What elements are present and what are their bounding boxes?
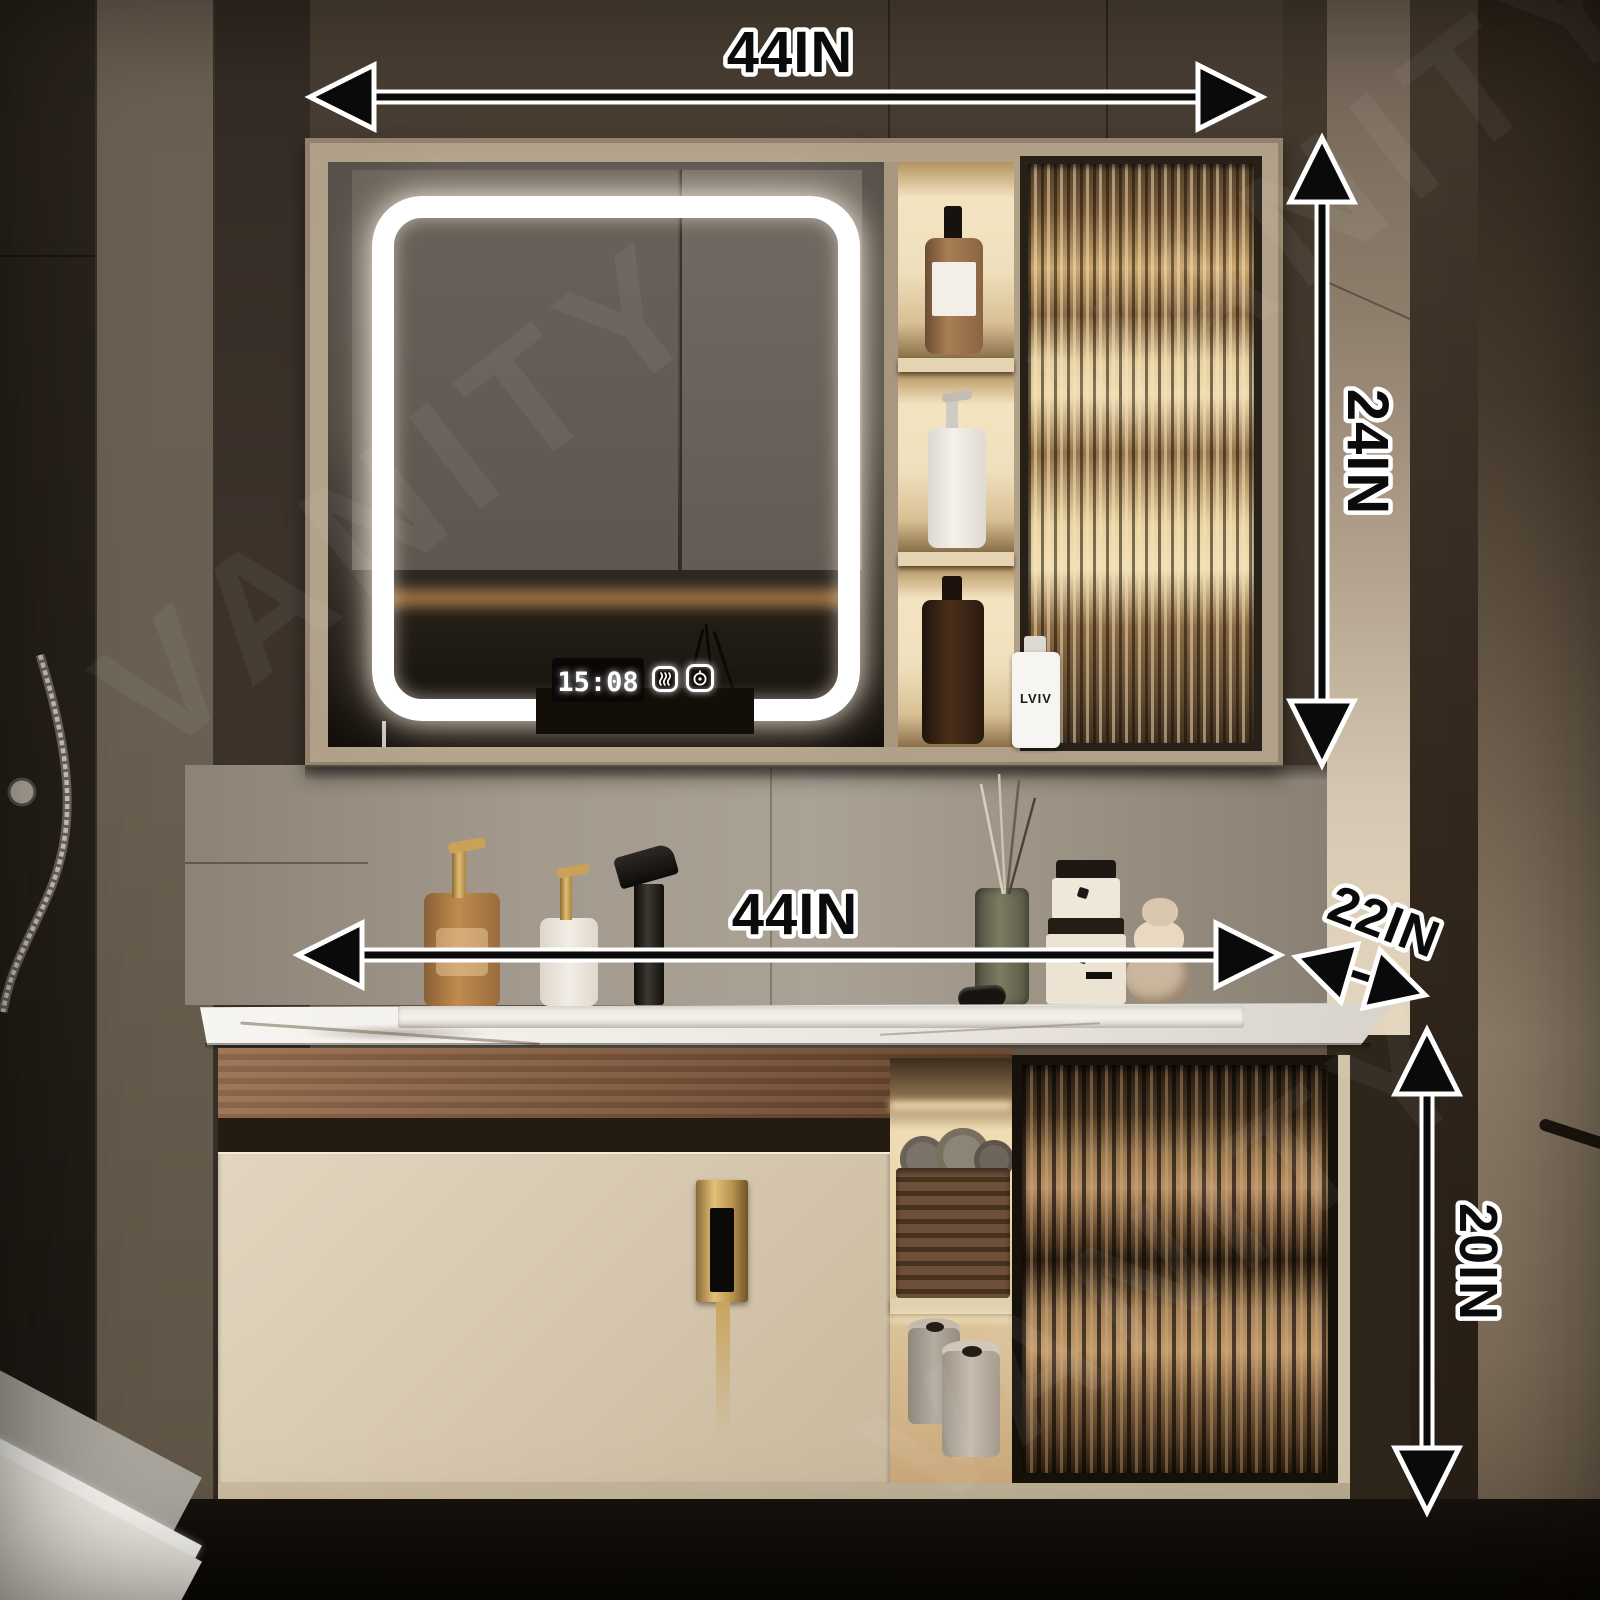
- toilet-paper-front: [942, 1351, 1000, 1457]
- defogger-icon: [657, 671, 673, 687]
- wall-dark-column: [1410, 0, 1478, 1600]
- lower-glass-sliding-door[interactable]: [1012, 1055, 1338, 1483]
- diffuser-reeds: [955, 768, 1055, 898]
- marble-blotch: [300, 1024, 490, 1042]
- lviv-bottle-label: LVIV: [1012, 688, 1060, 708]
- vanity-recess-strip: [218, 1118, 890, 1152]
- faucet-body[interactable]: [634, 884, 664, 1005]
- vanity-handle-slot: [710, 1208, 734, 1292]
- wall-top-seam-2: [1106, 0, 1108, 142]
- white-pump-bottle-pump: [946, 398, 958, 432]
- white-dispenser-pump: [560, 874, 572, 920]
- pebble-top: [1142, 898, 1178, 926]
- vanity-shelf-board: [890, 1298, 1012, 1314]
- vanity-shelf-glow-top: [890, 1102, 1012, 1109]
- vanity-right-filler: [1338, 1055, 1350, 1483]
- vanity-handle-tail: [716, 1302, 730, 1436]
- amber-pump-bottle-cap: [944, 206, 962, 242]
- clock-display: 15:08: [552, 664, 644, 700]
- jar-bottom-logo-bar: [1086, 972, 1112, 979]
- dark-bottle: [922, 600, 984, 744]
- basin-recess: [398, 1006, 1244, 1028]
- floor-shadow: [0, 1499, 1600, 1600]
- cabinet-divider: [884, 162, 898, 747]
- vanity-kick-strip: [218, 1483, 1350, 1499]
- shower-alcove-seam: [0, 255, 95, 257]
- mirror-led-tail: [382, 721, 386, 747]
- shower-hose: [0, 640, 220, 1060]
- amber-dispenser-shine: [436, 928, 488, 976]
- wall-light-panel: [1327, 0, 1410, 1035]
- amber-bottle-label: [932, 262, 976, 316]
- wall-streak-panel-right: [1478, 0, 1600, 1600]
- toilet-paper-back-hole: [926, 1322, 944, 1332]
- shower-hose-bracket: [9, 779, 35, 805]
- white-dispenser: [540, 918, 598, 1006]
- jar-top: [1052, 878, 1120, 920]
- jar-top-lid: [1056, 860, 1116, 880]
- storage-basket: [896, 1168, 1010, 1298]
- mirror-led-frame: [372, 196, 860, 721]
- shelf-board-2: [898, 552, 1014, 566]
- shelf-board-1: [898, 358, 1014, 372]
- pebble-bottom: [1126, 950, 1190, 1004]
- timer-button[interactable]: [686, 664, 714, 692]
- toilet-paper-front-hole: [962, 1346, 982, 1357]
- under-cabinet-shadow: [305, 765, 1327, 781]
- bathroom-scene: 15:08 LVIV: [0, 0, 1600, 1600]
- defogger-button[interactable]: [652, 666, 678, 692]
- jar-bottom: [1046, 934, 1126, 1004]
- amber-dispenser-pump: [452, 848, 466, 898]
- vanity-door[interactable]: [218, 1152, 890, 1484]
- timer-icon: [691, 669, 709, 687]
- backsplash-seam-v: [770, 765, 772, 1005]
- wall-top-seam-1: [888, 0, 890, 142]
- white-pump-bottle: [928, 428, 986, 548]
